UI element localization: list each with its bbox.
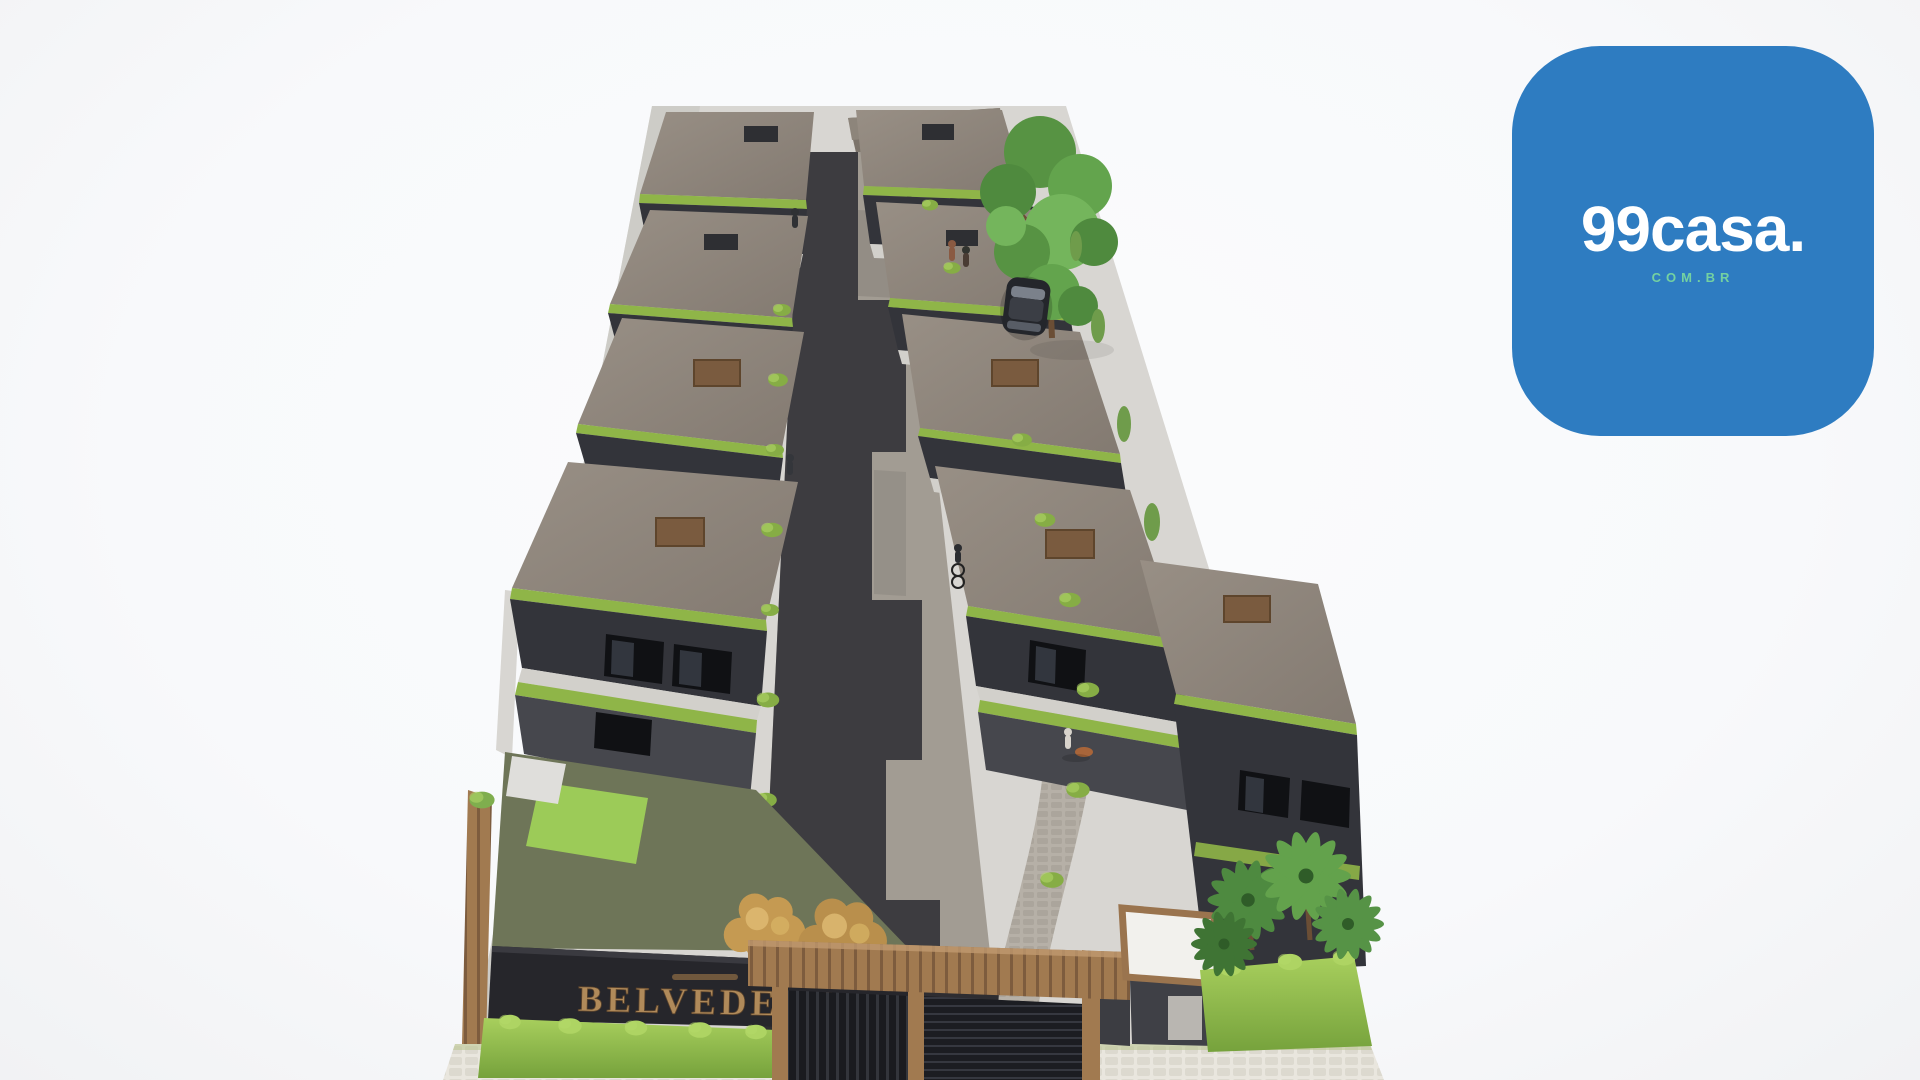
gate-vertical-bars — [778, 990, 910, 1080]
gate-horizontal-slats — [922, 996, 1084, 1080]
jogger — [786, 454, 794, 475]
pedestrian — [791, 208, 799, 228]
pedestrian — [948, 240, 956, 261]
watermark-logo: 99casa. COM.BR — [1512, 46, 1874, 436]
brand-domain-text: COM.BR — [1652, 270, 1735, 285]
guardhouse-door — [1168, 996, 1202, 1040]
house-left-4 — [496, 462, 798, 798]
brand-text: 99casa. — [1581, 197, 1805, 261]
listing-photo: BELVEDERE — [0, 0, 1920, 1080]
pedestrian — [962, 246, 970, 267]
